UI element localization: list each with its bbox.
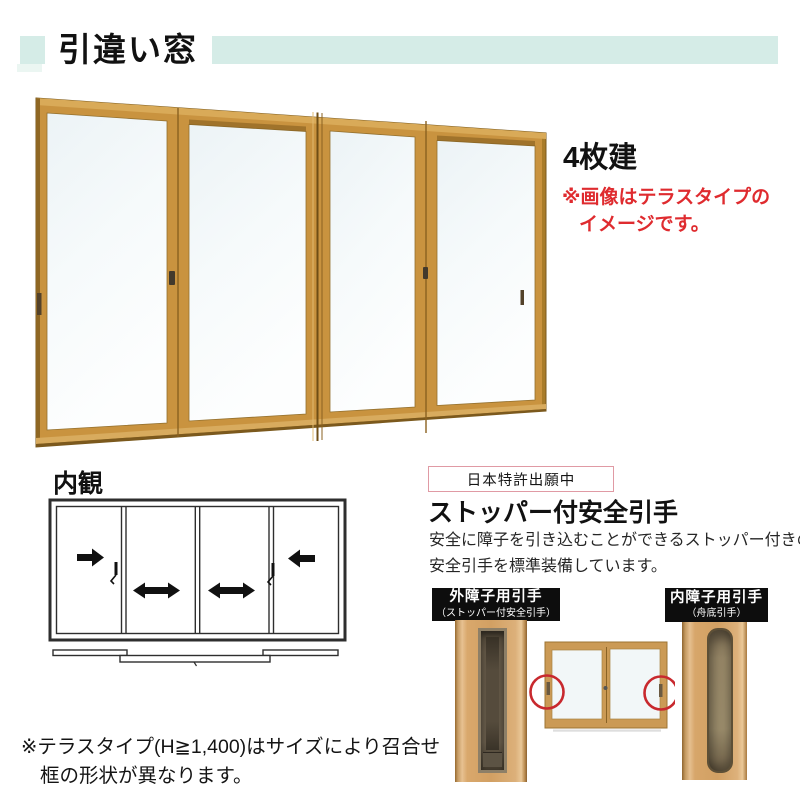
footnote: ※テラスタイプ(H≧1,400)はサイズにより召合せ 框の形状が異なります。 [21, 733, 440, 791]
patent-pending-badge: 日本特許出願中 [428, 466, 614, 492]
handle-slot [486, 637, 499, 750]
jamb-handle-icon [521, 290, 525, 305]
window-shadow [553, 730, 661, 732]
window-glass-panels [47, 113, 535, 430]
feature-heading: ストッパー付安全引手 [428, 493, 678, 529]
inner-sash-handle-label: 内障子用引手 （舟底引手） [665, 588, 768, 622]
terrace-type-note-line2: イメージです。 [562, 211, 770, 238]
stopper-safety-pull-icon [478, 628, 507, 773]
product-photo-4-panel-window [0, 0, 580, 470]
panel-count-label: 4枚建 [563, 134, 637, 176]
sash-handle-icon [423, 267, 428, 279]
terrace-type-note-line1: ※画像はテラスタイプの [562, 187, 770, 208]
handle-cap [483, 752, 502, 767]
left-handle-mark [547, 682, 551, 695]
outer-sash-handle-label: 外障子用引手 （ストッパー付安全引手） [432, 588, 560, 621]
interior-view-diagram [40, 490, 360, 670]
feature-description-line1: 安全に障子を引き込むことができるストッパー付きの [429, 532, 800, 549]
footnote-line1: ※テラスタイプ(H≧1,400)はサイズにより召合せ [21, 736, 440, 758]
feature-description: 安全に障子を引き込むことができるストッパー付きの 安全引手を標準装備しています。 [429, 528, 800, 579]
crescent-lock-icon [604, 686, 608, 690]
terrace-type-note: ※画像はテラスタイプの イメージです。 [562, 184, 770, 238]
jamb-handle-icon [37, 293, 42, 315]
handle-position-diagram [525, 633, 675, 738]
feature-description-line2: 安全引手を標準装備しています。 [429, 558, 667, 575]
boat-bottom-pull-icon [707, 628, 733, 773]
right-handle-mark [659, 684, 663, 697]
interior-window-outline [50, 500, 345, 640]
outer-sash-handle-label-line1: 外障子用引手 [432, 590, 560, 606]
inner-handle-photo [682, 622, 747, 780]
sash-handle-icon [169, 271, 175, 285]
inner-sash-handle-label-line2: （舟底引手） [665, 608, 768, 619]
inner-sash-handle-label-line1: 内障子用引手 [665, 591, 768, 607]
footnote-line2: 框の形状が異なります。 [21, 762, 440, 791]
outer-handle-photo [455, 620, 527, 782]
interior-plan-view [53, 650, 338, 666]
outer-sash-handle-label-line2: （ストッパー付安全引手） [432, 608, 560, 619]
